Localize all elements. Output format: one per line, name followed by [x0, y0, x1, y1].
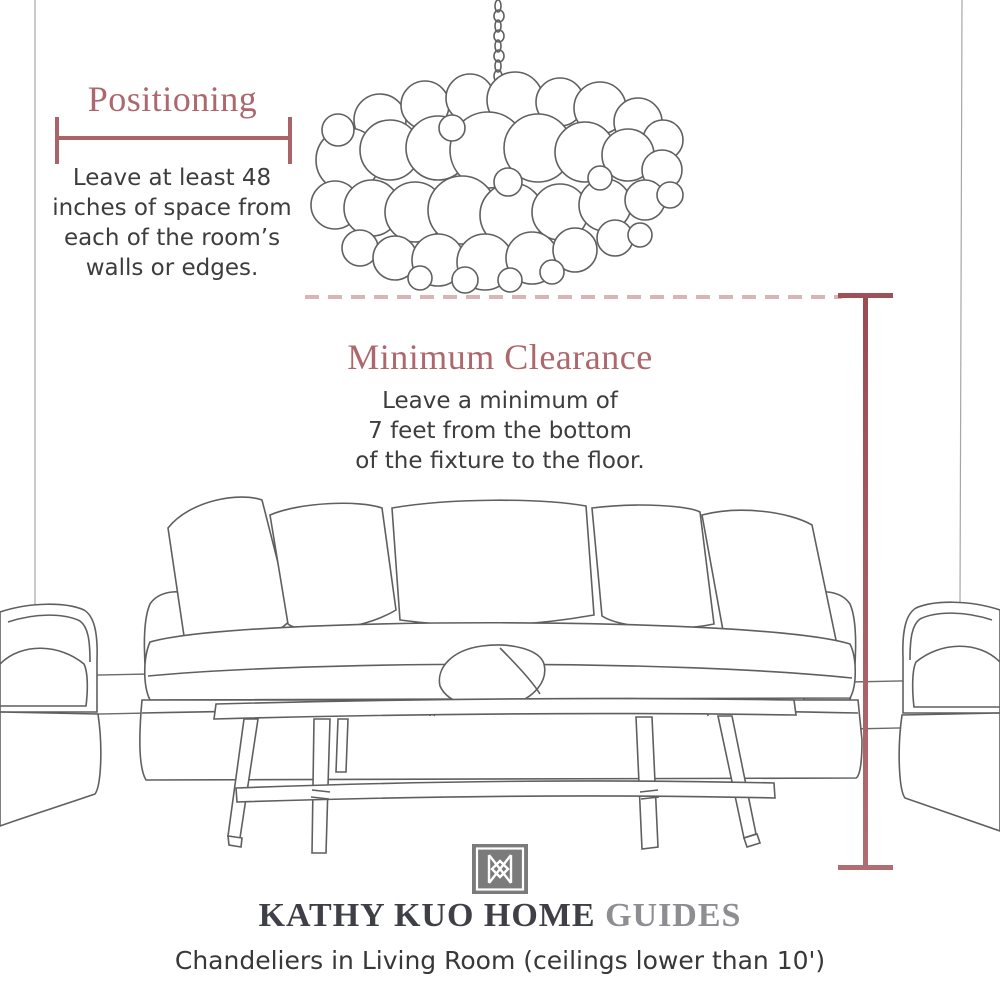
positioning-title: Positioning	[50, 78, 295, 120]
positioning-line-2: inches of space from	[36, 193, 308, 223]
clearance-line-3: of the fixture to the floor.	[310, 446, 690, 476]
positioning-dimension-cap-right	[288, 117, 292, 164]
positioning-line-4: walls or edges.	[36, 253, 308, 283]
bubble-chandelier-icon	[311, 72, 683, 293]
clearance-line-2: 7 feet from the bottom	[310, 416, 690, 446]
brand-suffix: GUIDES	[605, 897, 741, 934]
brand-line: KATHY KUO HOME GUIDES	[0, 897, 1000, 935]
clearance-line-1: Leave a minimum of	[310, 386, 690, 416]
positioning-line-1: Leave at least 48	[36, 163, 308, 193]
ceiling-dashed-line	[305, 295, 842, 299]
armchair-left-icon	[0, 604, 101, 826]
kathy-kuo-home-logo-icon	[472, 844, 528, 894]
infographic-canvas: Positioning Leave at least 48 inches of …	[0, 0, 1000, 1000]
armchair-right-icon	[899, 602, 1000, 831]
positioning-line-3: each of the room’s	[36, 223, 308, 253]
clearance-measure-line	[863, 295, 868, 869]
clearance-title: Minimum Clearance	[280, 336, 720, 378]
clearance-measure-cap-top	[838, 293, 893, 298]
clearance-description: Leave a minimum of 7 feet from the botto…	[310, 386, 690, 476]
chandelier-chain-icon	[494, 0, 504, 82]
positioning-dimension-cap-left	[55, 117, 59, 164]
positioning-dimension-line	[55, 136, 292, 140]
guide-caption: Chandeliers in Living Room (ceilings low…	[0, 946, 1000, 975]
positioning-description: Leave at least 48 inches of space from e…	[36, 163, 308, 283]
clearance-measure-cap-bottom	[838, 865, 893, 870]
brand-name: KATHY KUO HOME	[259, 897, 596, 934]
